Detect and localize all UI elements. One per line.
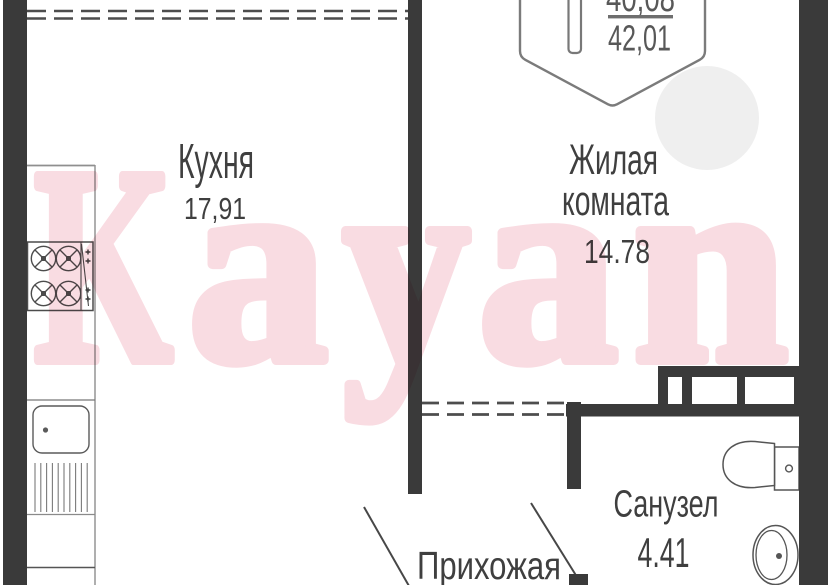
svg-text:42,01: 42,01 (608, 18, 671, 59)
svg-text:a: a (478, 110, 618, 421)
svg-text:K: K (34, 110, 174, 421)
svg-text:Санузел: Санузел (614, 484, 719, 526)
svg-text:Прихожая: Прихожая (417, 545, 561, 585)
svg-text:n: n (633, 110, 788, 421)
svg-text:a: a (188, 110, 328, 421)
svg-text:4.41: 4.41 (638, 529, 690, 576)
svg-text:y: y (343, 110, 470, 421)
